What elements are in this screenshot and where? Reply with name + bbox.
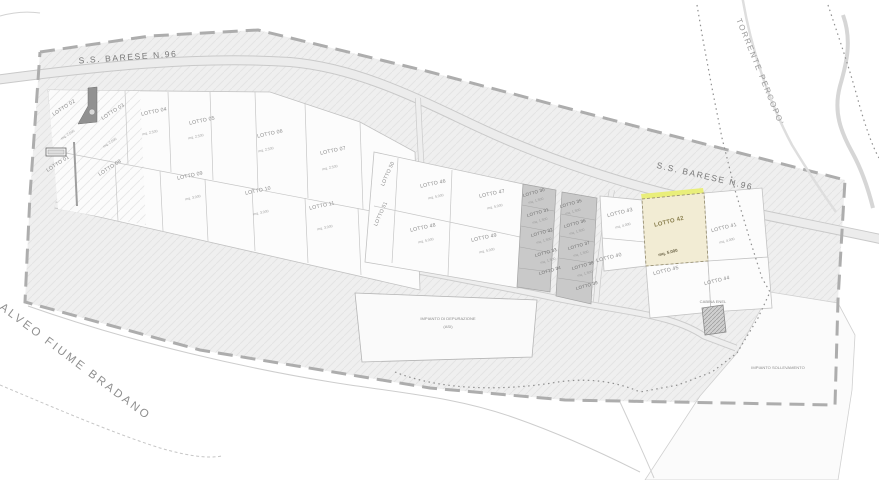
lot-label: LOTTO 08 [98, 159, 123, 178]
road-label-ss-barese-east: S.S. BARESE N.96 [656, 160, 755, 192]
water-label-torrente-percopo: TORRENTE PERCOPO' [734, 17, 785, 127]
lot-label: LOTTO 46 [420, 179, 447, 190]
lot-area-label: mq. 2.500 [61, 129, 76, 140]
lot-area-label: mq. 1.500 [569, 228, 585, 236]
lot-label-selected[interactable]: LOTTO 42 [654, 215, 685, 228]
lot-area-label: mq. 1.500 [565, 208, 581, 216]
lot-label: LOTTO 01 [46, 155, 71, 174]
lot-area-label: mq. 5.000 [418, 238, 434, 245]
lot-label: LOTTO 07 [320, 146, 347, 157]
lot-label: LOTTO 11 [309, 201, 335, 211]
area-label-depuratore-line1: IMPIANTO DI DEPURAZIONE [420, 317, 475, 321]
lot-area-label: mq. 1.500 [573, 250, 589, 258]
lot-area-label: mq. 1.500 [532, 217, 548, 225]
area-label-sollevamento: IMPIANTO SOLLEVAMENTO [751, 366, 804, 370]
labels-layer: S.S. BARESE N.96S.S. BARESE N.96TORRENTE… [0, 0, 879, 480]
lot-label: LOTTO 03 [101, 103, 126, 122]
lot-area-label: mq. 4.000 [719, 237, 735, 244]
lot-label: LOTTO 48 [410, 223, 437, 234]
lot-area-label: mq. 3.000 [185, 195, 201, 202]
lot-label: LOTTO 43 [607, 207, 634, 218]
lot-label: LOTTO 04 [141, 107, 168, 118]
lot-label: LOTTO 41 [711, 222, 738, 233]
lot-label: LOTTO 09 [177, 171, 204, 182]
lot-label: LOTTO 40 [596, 252, 623, 263]
road-label-ss-barese-west: S.S. BARESE N.96 [78, 49, 177, 66]
lot-label: LOTTO 05 [189, 116, 216, 127]
lot-area-label: mq. 1.500 [528, 197, 544, 205]
lot-label: LOTTO 47 [479, 189, 506, 200]
lot-area-label: mq. 5.000 [428, 194, 444, 201]
lot-area-label: mq. 5.000 [487, 204, 503, 211]
lot-area-label: mq. 2.500 [142, 130, 158, 137]
lot-label: LOTTO 51 [373, 201, 388, 227]
lot-area-label: mq. 5.000 [479, 248, 495, 255]
lot-label: LOTTO 44 [704, 275, 731, 286]
area-label-depuratore-line2: (ASI) [443, 325, 452, 329]
lot-label: LOTTO 02 [52, 99, 77, 118]
lot-area-label: mq. 2.500 [258, 147, 274, 154]
lot-area-label: mq. 3.000 [253, 210, 269, 217]
lot-area-label: mq. 2.500 [188, 134, 204, 141]
lot-area-label: mq. 5.000 [658, 249, 678, 258]
lot-area-label: mq. 2.500 [322, 165, 338, 172]
lot-label: LOTTO 45 [653, 265, 680, 276]
lot-area-label: mq. 1.500 [540, 257, 556, 265]
lot-area-label: mq. 1.500 [577, 270, 593, 278]
site-plan-canvas: S.S. BARESE N.96S.S. BARESE N.96TORRENTE… [0, 0, 879, 480]
lot-label: LOTTO 39 [576, 281, 599, 292]
lot-label: LOTTO 50 [380, 161, 395, 187]
lot-area-label: mq. 3.000 [317, 225, 333, 232]
lot-area-label: mq. 2.500 [103, 137, 118, 148]
water-label-fiume-bradano: ALVEO FIUME BRADANO [0, 301, 153, 422]
area-label-cabina: CABINA ENEL [700, 300, 727, 304]
lot-label: LOTTO 34 [539, 266, 562, 277]
lot-area-label: mq. 1.500 [536, 237, 552, 245]
lot-area-label: mq. 4.000 [615, 222, 631, 229]
lot-label: LOTTO 49 [471, 233, 498, 244]
lot-label: LOTTO 10 [245, 186, 272, 197]
lot-label: LOTTO 06 [257, 129, 284, 140]
